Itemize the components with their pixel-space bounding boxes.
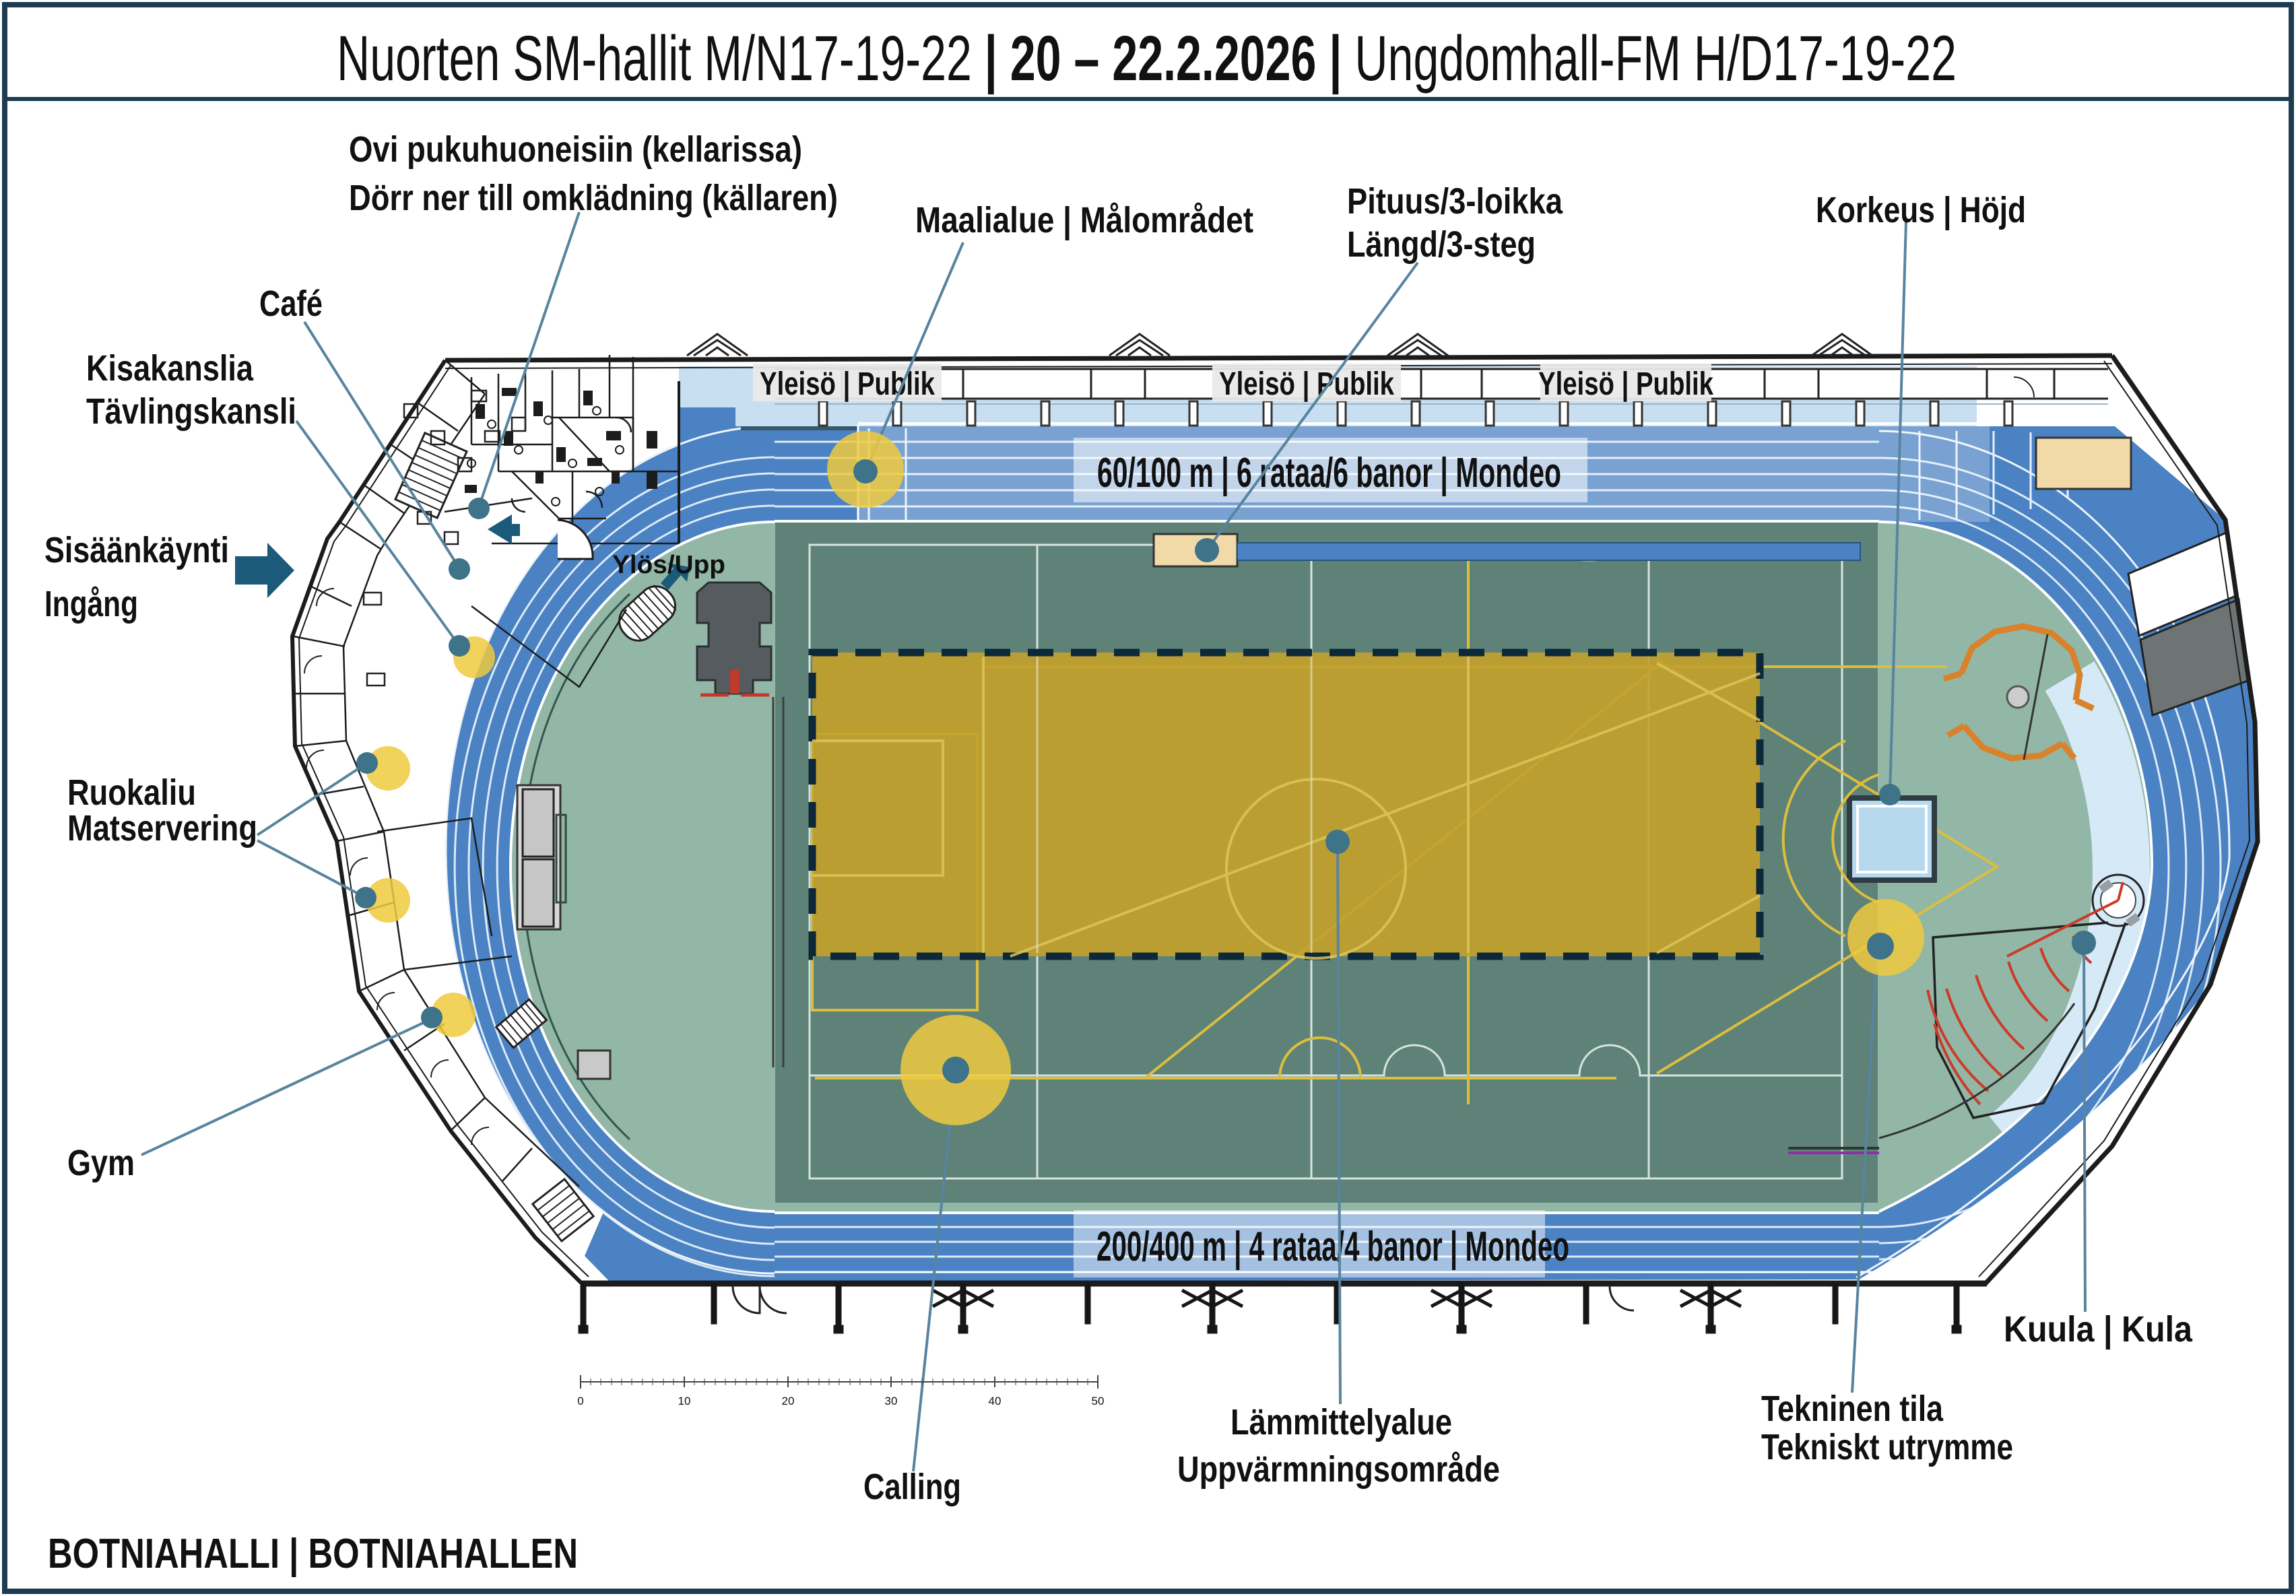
svg-text:Gym: Gym bbox=[67, 1143, 135, 1183]
svg-text:Matservering: Matservering bbox=[67, 808, 257, 849]
svg-text:60/100 m | 6 rataa/6 banor | M: 60/100 m | 6 rataa/6 banor | Mondeo bbox=[1097, 450, 1561, 497]
svg-text:Pituus/3-loikka: Pituus/3-loikka bbox=[1347, 181, 1563, 222]
svg-text:50: 50 bbox=[1092, 1395, 1105, 1407]
svg-text:200/400 m | 4 rataa/4 banor |: 200/400 m | 4 rataa/4 banor | Mondeo bbox=[1096, 1224, 1569, 1271]
svg-text:Sisäänkäynti: Sisäänkäynti bbox=[44, 530, 229, 570]
svg-text:BOTNIAHALLI | BOTNIAHALLEN: BOTNIAHALLI | BOTNIAHALLEN bbox=[48, 1531, 578, 1578]
svg-text:Kuula | Kula: Kuula | Kula bbox=[2004, 1309, 2193, 1350]
svg-text:Tekniskt utrymme: Tekniskt utrymme bbox=[1761, 1427, 2013, 1467]
svg-text:Ruokaliu: Ruokaliu bbox=[67, 772, 196, 813]
svg-text:Längd/3-steg: Längd/3-steg bbox=[1347, 224, 1536, 265]
svg-text:40: 40 bbox=[989, 1395, 1002, 1407]
svg-text:Uppvärmningsområde: Uppvärmningsområde bbox=[1177, 1449, 1500, 1490]
svg-text:Café: Café bbox=[259, 284, 323, 324]
svg-text:Tekninen tila: Tekninen tila bbox=[1761, 1389, 1944, 1429]
svg-text:Kisakanslia: Kisakanslia bbox=[86, 348, 254, 389]
svg-text:20: 20 bbox=[782, 1395, 795, 1407]
svg-text:Tävlingskansli: Tävlingskansli bbox=[86, 391, 296, 432]
svg-text:Lämmittelyalue: Lämmittelyalue bbox=[1231, 1402, 1452, 1442]
svg-text:Ingång: Ingång bbox=[44, 584, 138, 624]
svg-text:0: 0 bbox=[577, 1395, 583, 1407]
svg-text:Yleisö | Publik: Yleisö | Publik bbox=[1538, 366, 1713, 402]
svg-text:Korkeus | Höjd: Korkeus | Höjd bbox=[1816, 190, 2026, 231]
svg-text:Ovi pukuhuoneisiin (kellarissa: Ovi pukuhuoneisiin (kellarissa) bbox=[349, 129, 802, 170]
svg-text:30: 30 bbox=[885, 1395, 898, 1407]
svg-text:Dörr ner till omklädning (käll: Dörr ner till omklädning (källaren) bbox=[349, 178, 838, 218]
svg-text:Maalialue | Målområdet: Maalialue | Målområdet bbox=[915, 200, 1253, 241]
svg-text:Nuorten SM-hallit M/N17-19-22: Nuorten SM-hallit M/N17-19-22 | 20 – 22.… bbox=[337, 23, 1957, 94]
svg-text:Ylös/Upp: Ylös/Upp bbox=[612, 551, 725, 579]
svg-text:Yleisö | Publik: Yleisö | Publik bbox=[1219, 366, 1394, 402]
svg-text:10: 10 bbox=[678, 1395, 691, 1407]
svg-text:Calling: Calling bbox=[863, 1467, 961, 1507]
